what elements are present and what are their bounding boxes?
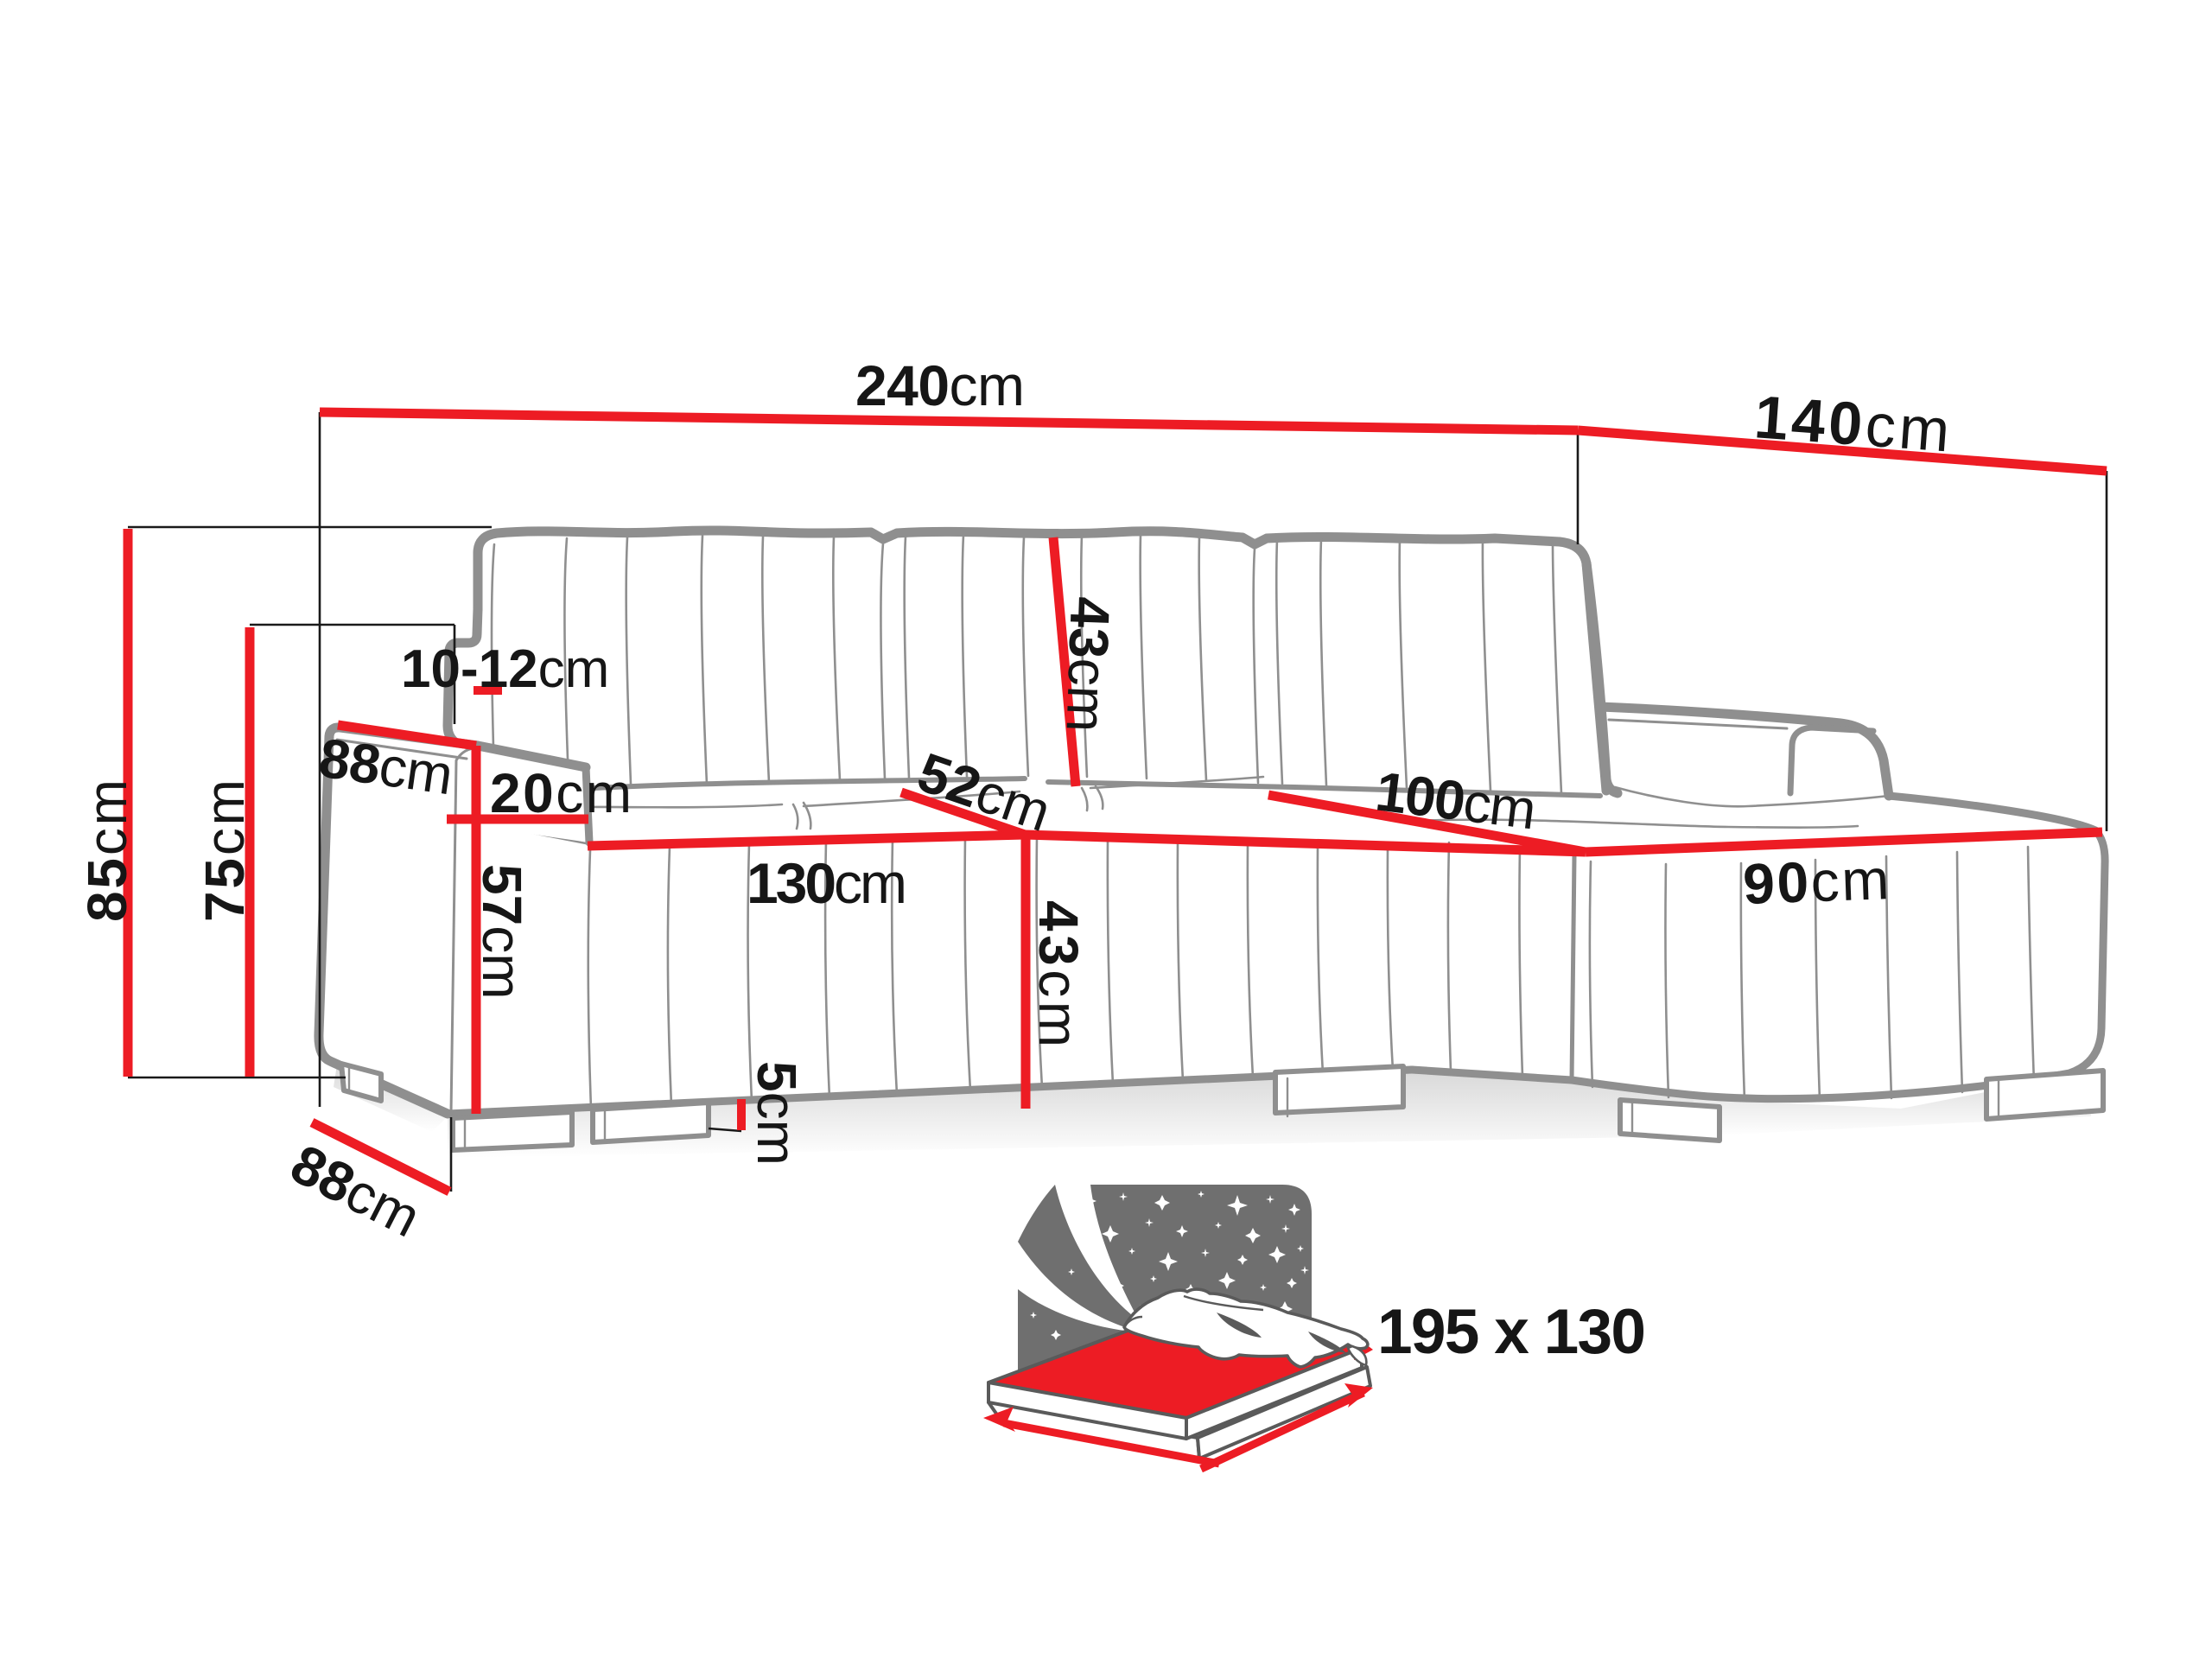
svg-text:130cm: 130cm (747, 851, 907, 915)
svg-text:90cm: 90cm (1742, 847, 1890, 916)
svg-text:140cm: 140cm (1752, 383, 1952, 464)
svg-text:240cm: 240cm (855, 353, 1025, 417)
svg-text:75cm: 75cm (194, 779, 256, 922)
svg-text:43cm: 43cm (1055, 596, 1122, 734)
svg-text:10-12cm: 10-12cm (401, 639, 609, 699)
svg-text:5cm: 5cm (746, 1061, 808, 1166)
svg-text:20cm: 20cm (490, 762, 632, 824)
svg-text:195 x 130: 195 x 130 (1377, 1297, 1646, 1367)
svg-text:57cm: 57cm (471, 864, 533, 1000)
svg-text:43cm: 43cm (1027, 900, 1090, 1047)
svg-text:85cm: 85cm (76, 779, 138, 922)
